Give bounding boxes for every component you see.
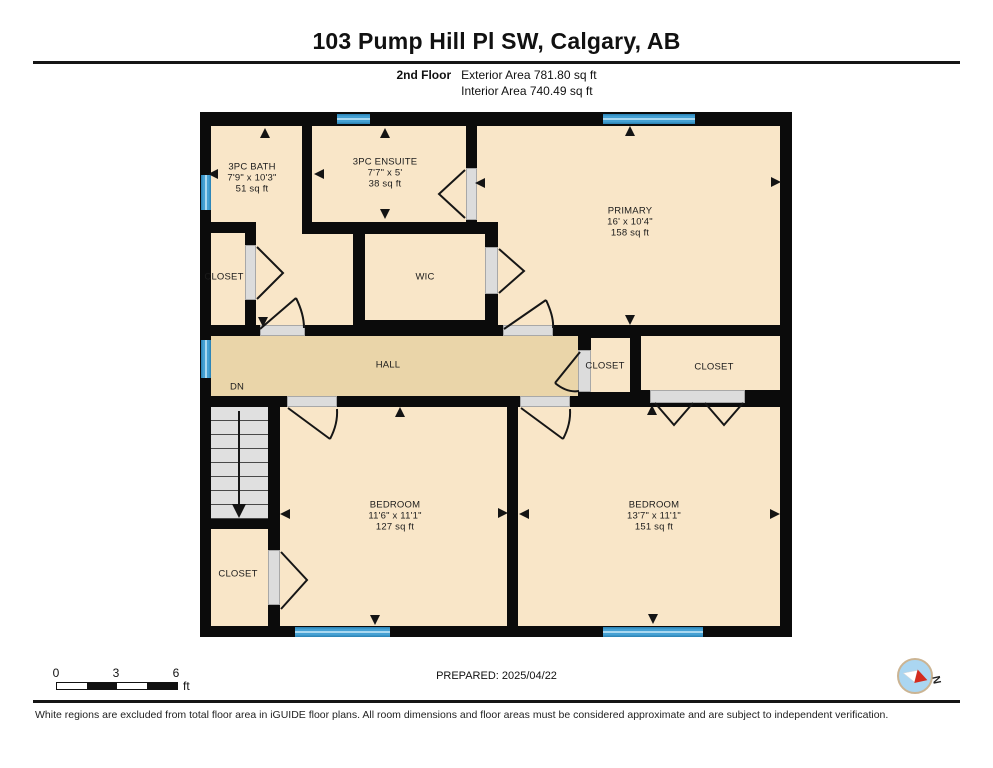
dimension-arrow-icon	[770, 509, 780, 519]
dimension-arrow-icon	[475, 178, 485, 188]
door-bifold-closet-large	[655, 403, 743, 425]
label-closet-large: CLOSET	[694, 362, 733, 373]
room-dims: 11'6" x 11'1"	[368, 511, 421, 522]
door-hall-end	[555, 352, 580, 391]
label-bedroom-right: BEDROOM 13'7" x 11'1" 151 sq ft	[627, 500, 681, 533]
dimension-arrow-icon	[370, 615, 380, 625]
label-closet-lower: CLOSET	[218, 569, 257, 580]
door-swing-layer	[200, 112, 792, 637]
disclaimer-text: White regions are excluded from total fl…	[35, 709, 888, 721]
door-closet-bath	[257, 247, 283, 299]
room-name: BEDROOM	[368, 500, 421, 511]
label-bath: 3PC BATH 7'9" x 10'3" 51 sq ft	[227, 162, 276, 195]
interior-area: Interior Area 740.49 sq ft	[461, 84, 596, 98]
dimension-arrow-icon	[771, 177, 781, 187]
compass-icon: N	[897, 658, 933, 694]
dimension-arrow-icon	[258, 317, 268, 327]
dimension-arrow-icon	[625, 126, 635, 136]
door-primary	[504, 300, 553, 329]
label-bedroom-left: BEDROOM 11'6" x 11'1" 127 sq ft	[368, 500, 421, 533]
floor-areas: Exterior Area 781.80 sq ft Interior Area…	[461, 68, 596, 100]
room-area: 51 sq ft	[227, 184, 276, 195]
scale-bar	[56, 682, 178, 690]
label-closet-small: CLOSET	[585, 361, 624, 372]
room-dims: 13'7" x 11'1"	[627, 511, 681, 522]
room-name: 3PC ENSUITE	[353, 157, 418, 168]
exterior-area: Exterior Area 781.80 sq ft	[461, 68, 596, 82]
room-name: PRIMARY	[607, 206, 653, 217]
dimension-arrow-icon	[260, 128, 270, 138]
door-ensuite	[439, 170, 465, 218]
label-hall: HALL	[376, 360, 401, 371]
room-dims: 16' x 10'4"	[607, 217, 653, 228]
stairs-down-arrow-icon	[232, 504, 246, 518]
dimension-arrow-icon	[314, 169, 324, 179]
door-leaves	[239, 170, 743, 609]
door-bedroom-right	[521, 408, 570, 439]
label-closet-bath: CLOSET	[204, 272, 243, 283]
room-name: HALL	[376, 360, 401, 371]
room-area: 151 sq ft	[627, 522, 681, 533]
room-name: WIC	[415, 272, 434, 283]
room-name: CLOSET	[204, 272, 243, 283]
label-wic: WIC	[415, 272, 434, 283]
door-closet-lower	[281, 552, 307, 609]
dimension-arrow-icon	[380, 209, 390, 219]
room-area: 127 sq ft	[368, 522, 421, 533]
dimension-arrow-icon	[519, 509, 529, 519]
room-name: CLOSET	[218, 569, 257, 580]
prepared-date: PREPARED: 2025/04/22	[0, 670, 993, 682]
compass-north-label: N	[929, 675, 942, 685]
label-stairs-dn: DN	[230, 382, 244, 393]
dimension-arrow-icon	[498, 508, 508, 518]
room-name: BEDROOM	[627, 500, 681, 511]
door-wic	[499, 249, 524, 293]
label-ensuite: 3PC ENSUITE 7'7" x 5' 38 sq ft	[353, 157, 418, 190]
dimension-arrow-icon	[395, 407, 405, 417]
door-bath	[260, 298, 304, 329]
dimension-arrows	[208, 126, 781, 625]
dimension-arrow-icon	[625, 315, 635, 325]
room-name: 3PC BATH	[227, 162, 276, 173]
floorplan-canvas: 3PC BATH 7'9" x 10'3" 51 sq ft 3PC ENSUI…	[200, 112, 792, 637]
label-primary: PRIMARY 16' x 10'4" 158 sq ft	[607, 206, 653, 239]
room-area: 38 sq ft	[353, 179, 418, 190]
stairs-dn-text: DN	[230, 382, 244, 393]
room-dims: 7'9" x 10'3"	[227, 173, 276, 184]
footer-divider	[33, 700, 960, 703]
floorplan-page: 103 Pump Hill Pl SW, Calgary, AB 2nd Flo…	[0, 0, 993, 768]
dimension-arrow-icon	[647, 405, 657, 415]
floor-label: 2nd Floor	[396, 68, 451, 82]
dimension-arrow-icon	[280, 509, 290, 519]
room-name: CLOSET	[585, 361, 624, 372]
header-divider	[33, 61, 960, 64]
door-bedroom-left	[288, 408, 337, 439]
dimension-arrow-icon	[380, 128, 390, 138]
dimension-arrow-icon	[648, 614, 658, 624]
compass-needle-icon	[898, 659, 932, 693]
room-name: CLOSET	[694, 362, 733, 373]
room-area: 158 sq ft	[607, 228, 653, 239]
room-dims: 7'7" x 5'	[353, 168, 418, 179]
floor-info: 2nd Floor Exterior Area 781.80 sq ft Int…	[0, 68, 993, 100]
page-title: 103 Pump Hill Pl SW, Calgary, AB	[0, 28, 993, 55]
dimension-arrow-icon	[208, 169, 218, 179]
